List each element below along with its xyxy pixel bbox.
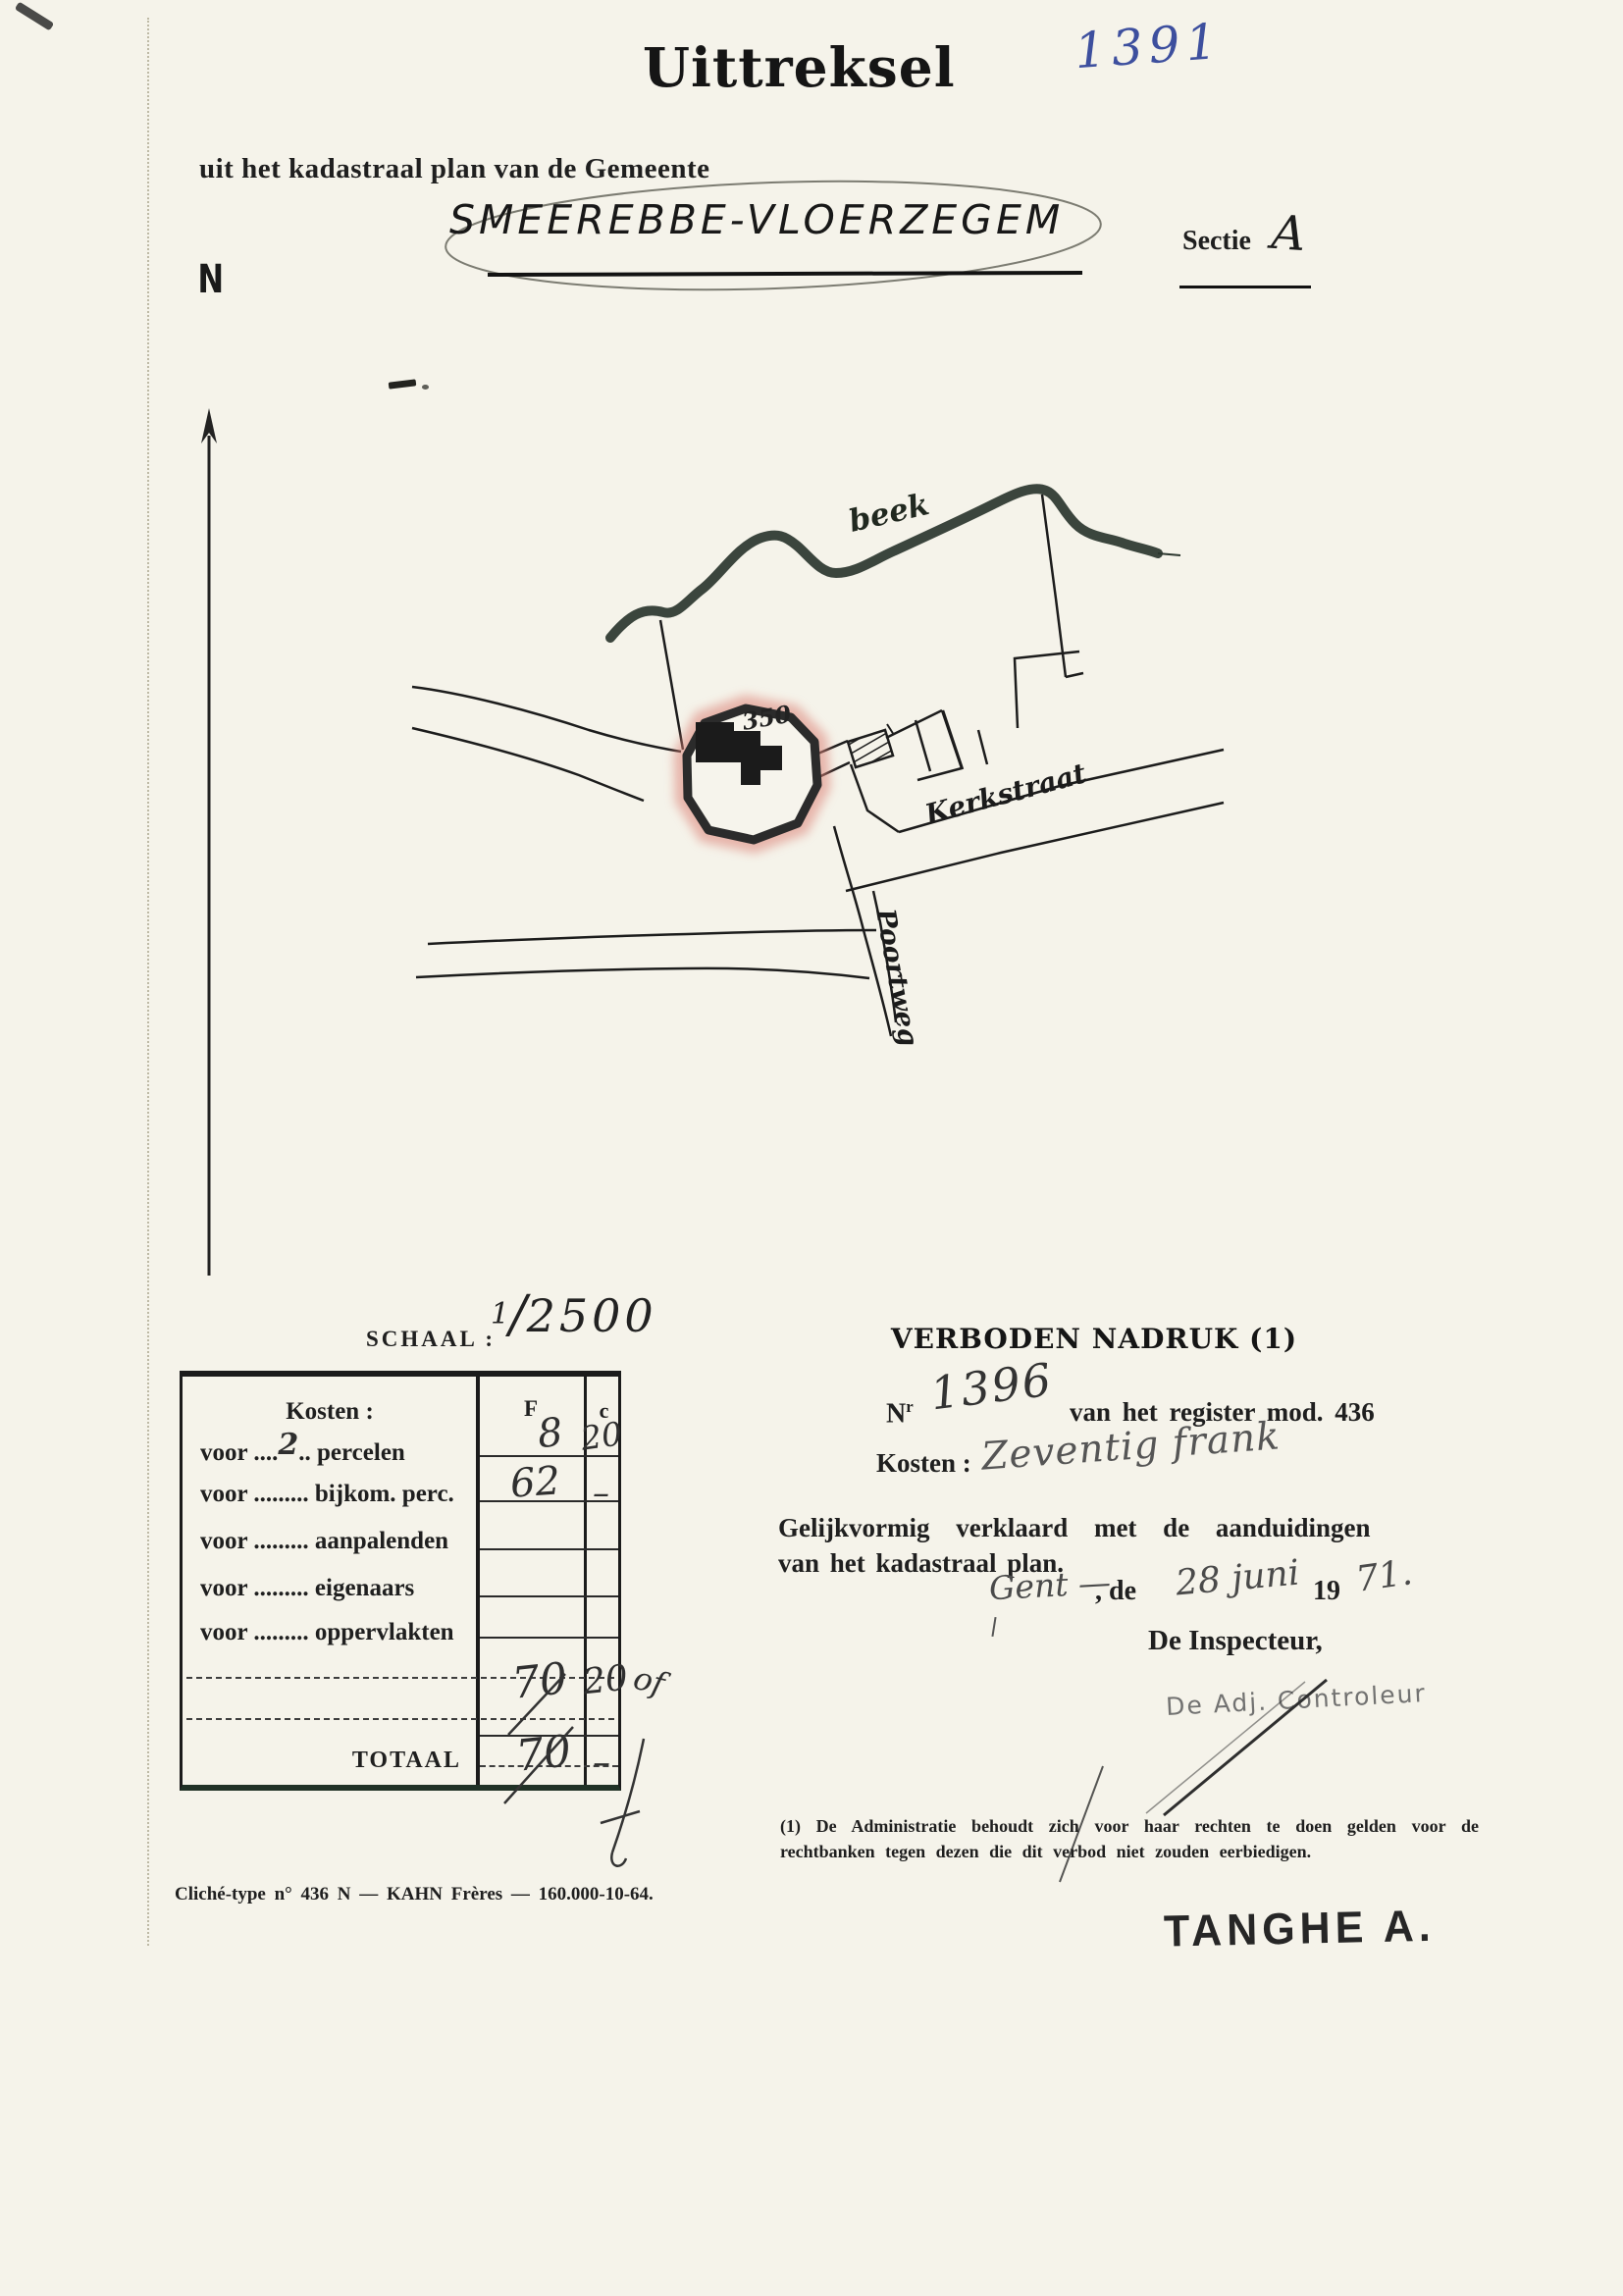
row-pre: voor ......... xyxy=(200,1575,309,1601)
kosten-certificate-value: Zeventig frank xyxy=(980,1414,1282,1479)
row-pre: voor ......... xyxy=(200,1481,309,1507)
scan-corner-smudge xyxy=(15,2,54,31)
amount-percelen-f: 8 xyxy=(536,1410,565,1457)
year-printed: 19 xyxy=(1313,1576,1340,1607)
row-pre: voor ......... xyxy=(200,1528,309,1554)
sectie-underline xyxy=(1179,286,1311,288)
municipality-name: SMEEREBBE-VLOERZEGEM xyxy=(449,196,1064,243)
row-post: .. percelen xyxy=(298,1439,405,1466)
sectie-value-handwritten: A xyxy=(1270,205,1307,262)
row-post: aanpalenden xyxy=(309,1528,448,1554)
kosten-row-label: voor ....2.. percelen xyxy=(200,1434,405,1468)
amount-percelen-c: 20 xyxy=(578,1414,624,1457)
page-title: Uittreksel xyxy=(643,35,956,99)
verboden-nadruk-heading: VERBODEN NADRUK (1) xyxy=(864,1323,1325,1355)
north-arrow xyxy=(189,397,231,1290)
date-de-printed: , de xyxy=(1095,1576,1136,1607)
kosten-certificate-label: Kosten : xyxy=(876,1448,971,1479)
cliche-credit-line: Cliché-type n° 436 N — KAHN Frères — 160… xyxy=(175,1884,654,1905)
row-hand-value: 2 xyxy=(278,1428,298,1462)
page-fold-dotted-line xyxy=(147,18,149,1946)
schaal-slash: / xyxy=(509,1285,527,1344)
nr-sup: r xyxy=(906,1397,913,1416)
nr-label: Nr xyxy=(886,1397,914,1430)
nr-value-handwritten: 1396 xyxy=(927,1353,1056,1421)
street-kerkstraat-label: Kerkstraat xyxy=(920,757,1089,831)
name-stamp: TANGHE A. xyxy=(1163,1902,1436,1957)
schaal-denominator: 2500 xyxy=(527,1289,657,1342)
hatched-building xyxy=(848,730,893,767)
date-handwritten: 28 juni xyxy=(1174,1553,1300,1604)
sectie-label: Sectie xyxy=(1182,226,1251,257)
map-smudge-mark xyxy=(389,379,417,389)
footnote: (1) De Administratie behoudt zich voor h… xyxy=(780,1813,1479,1864)
conform-line1: Gelijkvormig verklaard met de aanduiding… xyxy=(778,1513,1371,1543)
map-smudge-dot xyxy=(422,385,429,390)
inspecteur-line: De Inspecteur, xyxy=(1148,1625,1323,1657)
scanned-cadastral-extract: 1391 Uittreksel uit het kadastraal plan … xyxy=(0,0,1623,2296)
place-handwritten: Gent — xyxy=(988,1563,1112,1607)
cadastral-map-sketch: beek Poortweg Kerkstraat 350 xyxy=(393,461,1246,1109)
stream-label: beek xyxy=(846,487,933,540)
handwritten-corner-number: 1391 xyxy=(1073,13,1225,79)
row-post: bijkom. perc. xyxy=(309,1481,454,1507)
year-handwritten: 71. xyxy=(1353,1552,1414,1600)
place-pen-tick xyxy=(991,1617,996,1637)
kosten-header: Kosten : xyxy=(212,1398,447,1426)
table-pen-strikes xyxy=(471,1629,707,1894)
nr-n: N xyxy=(886,1398,906,1429)
kosten-row-label: voor ......... eigenaars xyxy=(200,1575,414,1602)
row-post: oppervlakten xyxy=(309,1619,454,1645)
totaal-label: TOTAAL xyxy=(183,1748,461,1774)
schaal-numerator: 1 xyxy=(491,1297,509,1331)
row-pre: voor .... xyxy=(200,1439,278,1466)
kosten-row-label: voor ......... oppervlakten xyxy=(200,1619,454,1646)
north-label: N xyxy=(197,257,224,302)
schaal-value-handwritten: 1/2500 xyxy=(491,1285,657,1344)
amount-bijkom-c: – xyxy=(593,1474,609,1513)
schaal-label: SCHAAL : xyxy=(366,1327,496,1352)
row-pre: voor ......... xyxy=(200,1619,309,1645)
row-post: eigenaars xyxy=(309,1575,415,1601)
kosten-row-label: voor ......... aanpalenden xyxy=(200,1528,448,1555)
kosten-row-label: voor ......... bijkom. perc. xyxy=(200,1481,454,1508)
schaal-label-text: SCHAAL : xyxy=(366,1327,496,1351)
amount-bijkom-f: 62 xyxy=(508,1458,561,1506)
